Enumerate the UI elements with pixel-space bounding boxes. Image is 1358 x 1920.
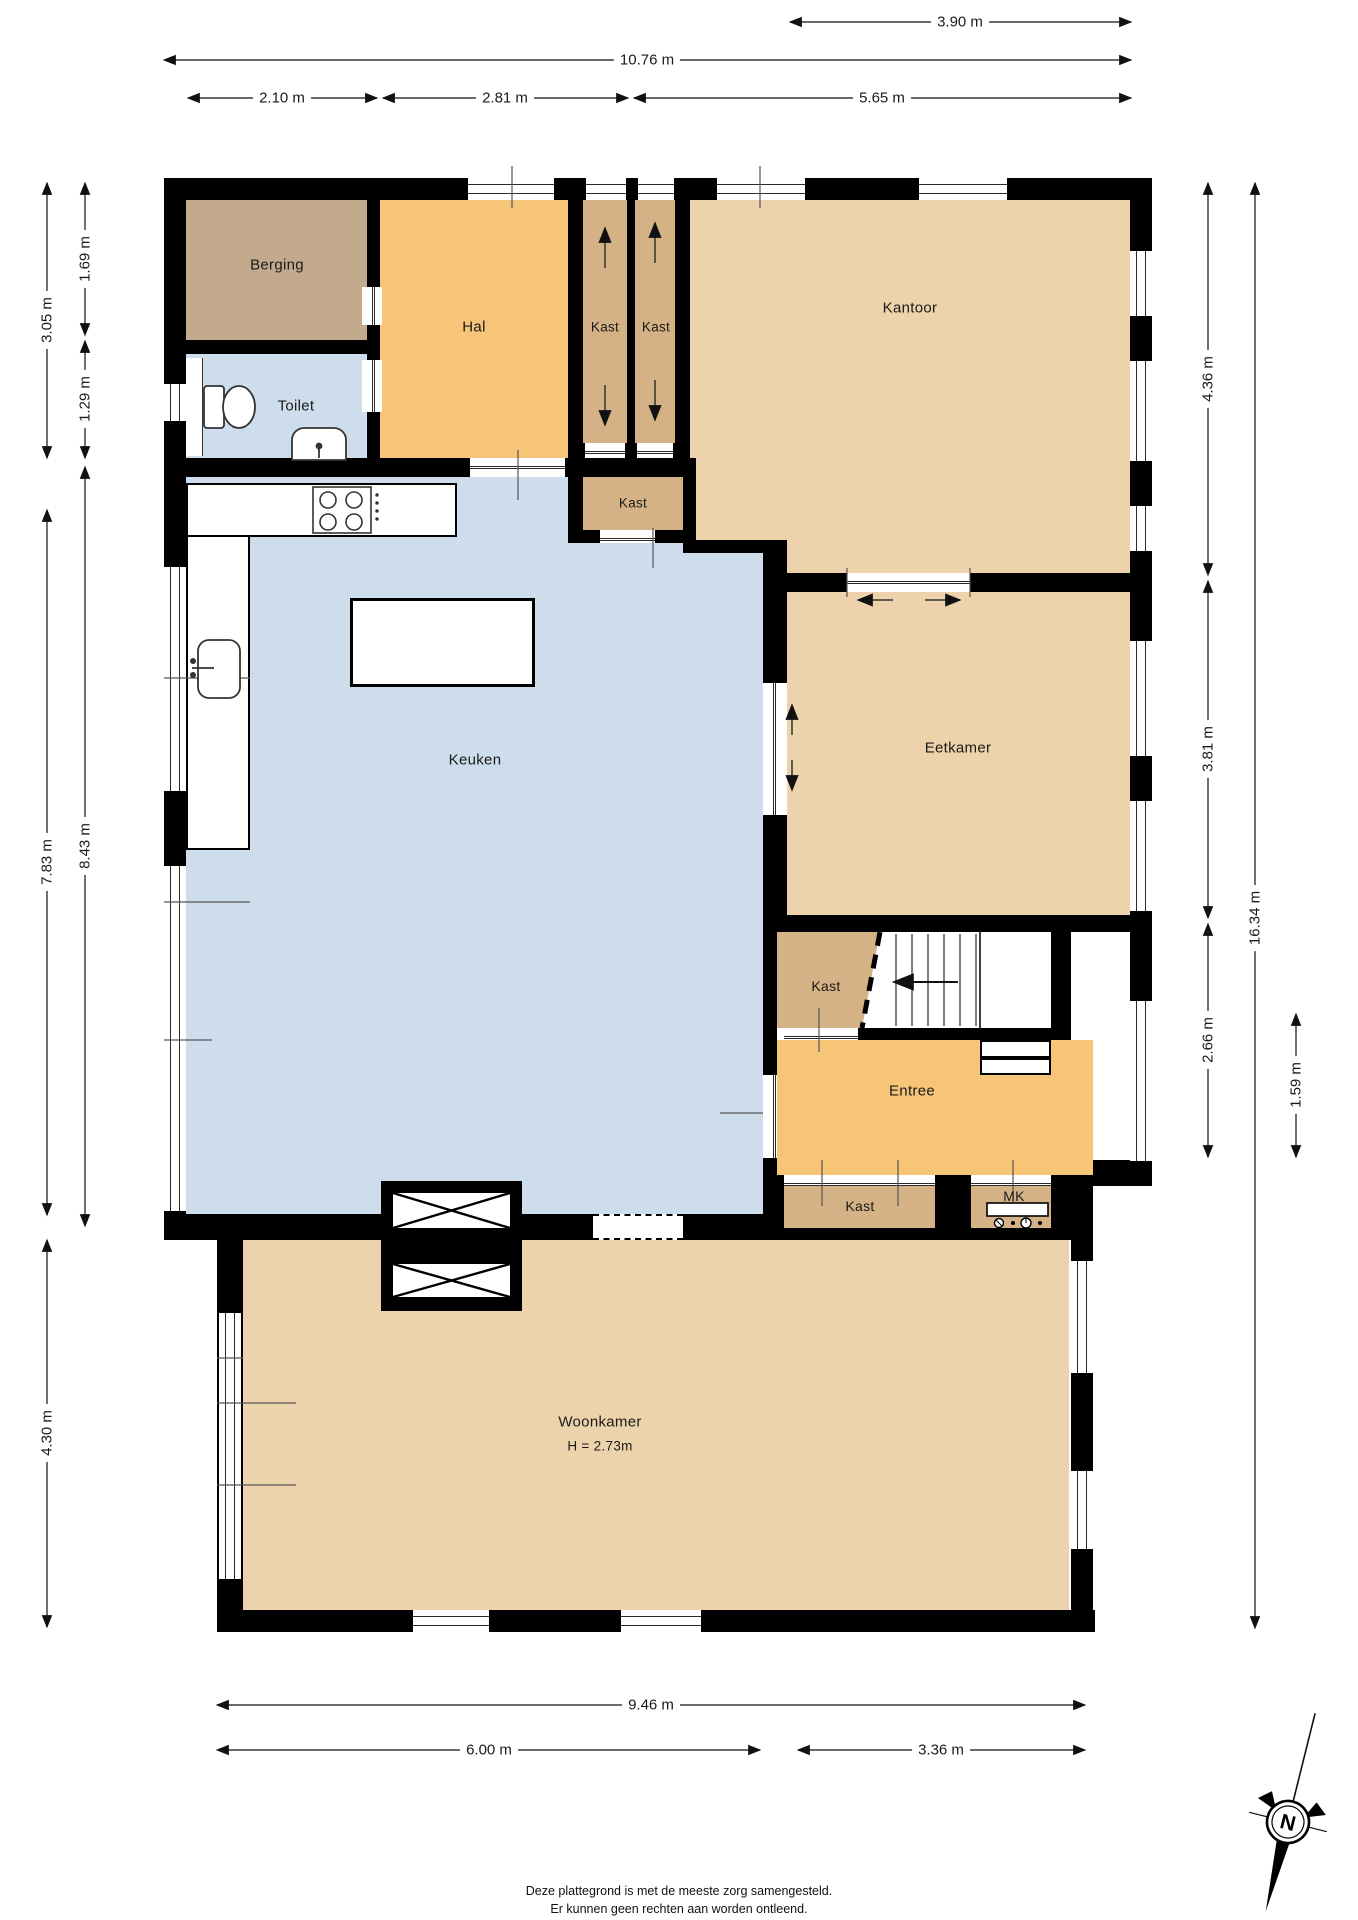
dim-right-266: 2.66 m <box>1200 1011 1217 1069</box>
dim-top-565: 5.65 m <box>853 90 911 107</box>
window-toilet-west <box>164 383 186 422</box>
dim-left-169: 1.69 m <box>77 230 94 288</box>
dim-top-1076: 10.76 m <box>614 52 680 69</box>
room-woonkamer-floor <box>243 1240 1069 1610</box>
room-label-kast-hal-left: Kast <box>591 320 619 335</box>
wall-west-upper <box>164 178 186 566</box>
door-kast-entree <box>784 1175 935 1186</box>
kitchen-counter-west <box>186 535 250 850</box>
toilet-door-recess <box>186 358 203 456</box>
dim-bottom-336: 3.36 m <box>912 1742 970 1759</box>
disclaimer-line-2: Er kunnen geen rechten aan worden ontlee… <box>0 1902 1358 1916</box>
room-label-eetkamer: Eetkamer <box>925 740 992 757</box>
door-kast-trap <box>784 1028 858 1040</box>
wall-kast-kast <box>627 200 635 458</box>
room-label-kantoor: Kantoor <box>883 300 938 317</box>
dim-right-159: 1.59 m <box>1288 1056 1305 1114</box>
dim-right-381: 3.81 m <box>1200 720 1217 778</box>
wall-stairs-south <box>857 1028 1071 1040</box>
wall-hal-kast <box>568 200 583 458</box>
window-keuken-west-2 <box>164 865 186 1212</box>
window-kantoor-east-3 <box>1130 505 1152 552</box>
room-label-keuken: Keuken <box>449 752 502 769</box>
window-kantoor-north-1 <box>716 178 806 200</box>
stair-step-2 <box>980 1058 1051 1075</box>
room-label-entree: Entree <box>889 1083 935 1100</box>
room-kantoor-floor-2 <box>787 540 1130 573</box>
wall-eetkamer-south <box>763 915 1130 932</box>
dim-left-783: 7.83 m <box>39 833 56 891</box>
window-hal-north <box>467 178 555 200</box>
wall-east-lower <box>1071 1186 1093 1632</box>
dim-top-281: 2.81 m <box>476 90 534 107</box>
room-label-berging: Berging <box>250 257 304 274</box>
door-mk <box>971 1175 1051 1186</box>
wall-berging-hal <box>367 200 380 458</box>
window-entree-east <box>1130 1000 1152 1162</box>
compass-north-label: N <box>1278 1810 1298 1836</box>
window-kast-right-north <box>637 178 675 200</box>
dim-right-436: 4.36 m <box>1200 350 1217 408</box>
door-toilet <box>362 360 382 412</box>
window-woonkamer-east-2 <box>1071 1470 1093 1550</box>
window-keuken-west-1 <box>164 566 186 792</box>
window-kantoor-east-2 <box>1130 360 1152 462</box>
room-label-kast-hal-right: Kast <box>642 320 670 335</box>
wall-berging-toilet <box>186 340 380 354</box>
dim-left-305: 3.05 m <box>39 291 56 349</box>
dim-top-390: 3.90 m <box>931 14 989 31</box>
door-kast-corridor-right <box>637 443 673 458</box>
dim-left-129: 1.29 m <box>77 370 94 428</box>
dim-right-1634: 16.34 m <box>1247 885 1264 951</box>
wall-landing-east <box>1051 932 1071 1032</box>
wall-kast-keuken-north <box>583 458 696 477</box>
dim-bottom-946: 9.46 m <box>622 1697 680 1714</box>
sliding-door-kantoor-eetkamer <box>847 573 970 592</box>
floorplan-canvas: N Berging Toilet Hal Kast Kast Kantoor K… <box>0 0 1358 1920</box>
opening-keuken-woonkamer <box>593 1214 683 1240</box>
wall-kast-kantoor <box>675 200 690 458</box>
room-label-hal: Hal <box>462 319 485 336</box>
window-eetkamer-east-2 <box>1130 800 1152 912</box>
wall-kast-keuken-east <box>683 477 696 543</box>
window-woonkamer-west <box>219 1312 241 1580</box>
door-kast-corridor-left <box>585 443 625 458</box>
room-label-woonkamer-height: H = 2.73m <box>567 1439 632 1454</box>
kitchen-counter-top <box>186 483 457 537</box>
room-label-kast-entree: Kast <box>845 1198 874 1214</box>
room-label-mk: MK <box>1003 1188 1025 1204</box>
wall-kast-mk-divider <box>935 1175 971 1228</box>
kitchen-island <box>350 598 535 687</box>
opening-hal-keuken <box>470 458 565 477</box>
window-woonkamer-south-2 <box>620 1610 702 1632</box>
room-berging-floor <box>186 200 380 354</box>
window-kast-left-north <box>585 178 627 200</box>
room-keuken-floor <box>186 458 763 1214</box>
stair-step-1 <box>980 1040 1051 1058</box>
room-label-kast-trap: Kast <box>811 978 840 994</box>
wall-entree-south-west <box>763 1175 784 1228</box>
door-kast-keuken <box>600 530 655 543</box>
room-label-woonkamer: Woonkamer <box>558 1414 641 1431</box>
wall-kast-keuken-west <box>568 477 583 530</box>
door-keuken-eetkamer <box>763 683 787 815</box>
dim-left-843: 8.43 m <box>77 817 94 875</box>
room-kantoor-floor <box>690 200 1130 540</box>
room-label-toilet: Toilet <box>278 398 315 415</box>
window-kantoor-east-1 <box>1130 250 1152 317</box>
dim-top-210: 2.10 m <box>253 90 311 107</box>
window-eetkamer-east-1 <box>1130 640 1152 757</box>
dim-bottom-600: 6.00 m <box>460 1742 518 1759</box>
fireplace-block <box>381 1181 522 1311</box>
room-label-kast-keuken: Kast <box>619 496 647 511</box>
dim-left-430: 4.30 m <box>39 1404 56 1462</box>
window-woonkamer-east-1 <box>1071 1260 1093 1374</box>
window-kantoor-north-2 <box>918 178 1008 200</box>
disclaimer-line-1: Deze plattegrond is met de meeste zorg s… <box>0 1884 1358 1898</box>
door-berging <box>362 287 382 325</box>
wall-band-woonkamer <box>763 1228 1093 1240</box>
window-woonkamer-south-1 <box>412 1610 490 1632</box>
door-keuken-entree <box>763 1075 777 1158</box>
